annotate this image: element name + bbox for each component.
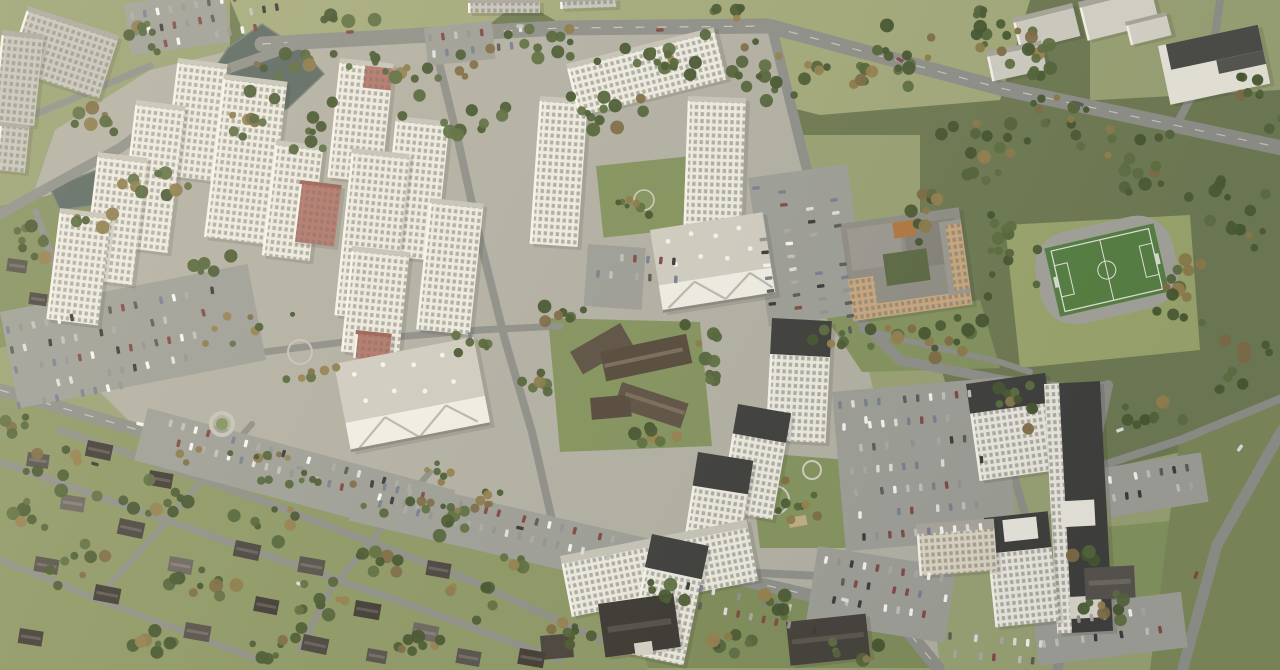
sunlight-overlay xyxy=(0,0,1280,670)
residential-complex-aerial-render xyxy=(0,0,1280,670)
aerial-render-viewport xyxy=(0,0,1280,670)
